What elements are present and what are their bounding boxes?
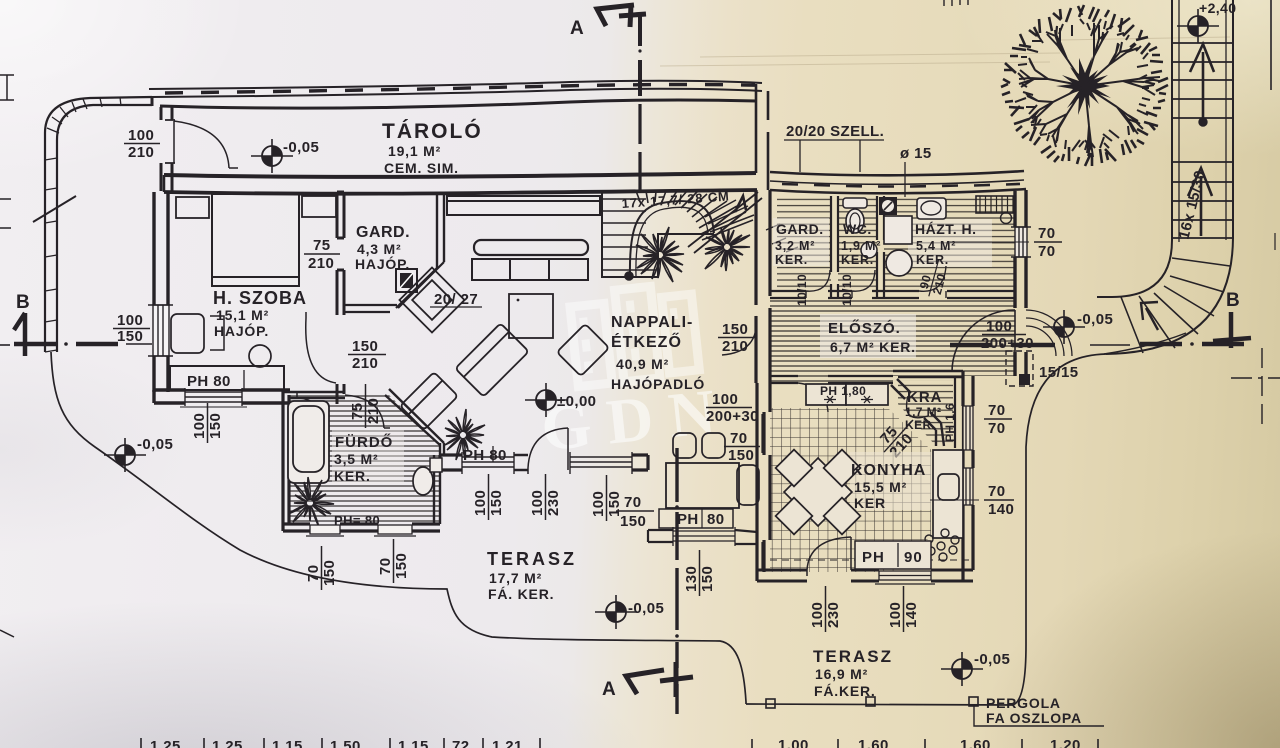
svg-text:1,15: 1,15 — [398, 738, 429, 748]
svg-text:1,25: 1,25 — [150, 738, 181, 748]
svg-text:B: B — [16, 292, 31, 313]
svg-text:+2,40: +2,40 — [1199, 0, 1236, 16]
svg-text:H. SZOBA: H. SZOBA — [213, 288, 307, 308]
svg-text:70: 70 — [730, 430, 748, 447]
svg-text:1,60: 1,60 — [858, 737, 889, 748]
svg-text:150: 150 — [722, 321, 748, 338]
svg-text:GARD.: GARD. — [776, 221, 824, 237]
svg-text:80: 80 — [707, 511, 725, 528]
svg-text:70: 70 — [305, 565, 322, 583]
svg-text:1,7 M²: 1,7 M² — [905, 405, 941, 419]
svg-text:150: 150 — [393, 553, 410, 579]
svg-text:200+30: 200+30 — [981, 335, 1034, 352]
svg-text:HÁZT. H.: HÁZT. H. — [915, 221, 977, 237]
svg-text:-0,05: -0,05 — [1077, 311, 1113, 328]
svg-text:100: 100 — [529, 490, 546, 516]
svg-text:70: 70 — [988, 420, 1006, 437]
svg-text:KER.: KER. — [841, 253, 874, 267]
svg-text:210: 210 — [365, 398, 382, 424]
svg-text:±0,00: ±0,00 — [557, 393, 596, 410]
svg-text:70: 70 — [624, 494, 642, 511]
svg-text:130: 130 — [683, 566, 700, 592]
svg-text:100: 100 — [128, 127, 154, 144]
svg-text:KONYHA: KONYHA — [851, 462, 926, 479]
svg-text:150: 150 — [699, 566, 716, 592]
svg-text:PH: PH — [677, 511, 699, 528]
svg-text:150: 150 — [606, 491, 623, 517]
svg-text:KER.: KER. — [334, 468, 371, 484]
svg-text:230: 230 — [825, 602, 842, 628]
svg-text:210: 210 — [722, 338, 748, 355]
svg-text:10/10: 10/10 — [840, 274, 854, 306]
svg-text:100: 100 — [590, 491, 607, 517]
svg-text:GARD.: GARD. — [356, 224, 410, 241]
svg-text:KER.: KER. — [775, 253, 808, 267]
svg-text:20/20 SZELL.: 20/20 SZELL. — [786, 123, 884, 140]
svg-text:150: 150 — [321, 560, 338, 586]
svg-text:72: 72 — [452, 738, 470, 748]
svg-text:-0,05: -0,05 — [628, 600, 664, 617]
svg-text:100: 100 — [472, 490, 489, 516]
svg-text:KER: KER — [854, 495, 886, 511]
svg-text:140: 140 — [903, 602, 920, 628]
svg-text:TÁROLÓ: TÁROLÓ — [382, 119, 483, 143]
svg-text:1,15: 1,15 — [272, 738, 303, 748]
svg-text:140: 140 — [988, 501, 1014, 518]
svg-text:CEM. SIM.: CEM. SIM. — [384, 160, 459, 176]
svg-text:TERASZ: TERASZ — [813, 647, 893, 666]
svg-text:40,9 M²: 40,9 M² — [616, 356, 669, 372]
svg-text:B: B — [1226, 290, 1241, 311]
svg-text:TERASZ: TERASZ — [487, 549, 577, 569]
svg-text:150: 150 — [620, 513, 646, 530]
svg-text:210: 210 — [352, 355, 378, 372]
svg-text:KRA: KRA — [907, 389, 943, 406]
svg-text:3,2 M²: 3,2 M² — [775, 239, 815, 253]
svg-text:1,60: 1,60 — [960, 737, 991, 748]
svg-text:16,9 M²: 16,9 M² — [815, 666, 868, 682]
svg-text:1,21: 1,21 — [492, 738, 523, 748]
svg-text:150: 150 — [352, 338, 378, 355]
svg-text:ÉTKEZŐ: ÉTKEZŐ — [611, 332, 682, 351]
svg-text:PERGOLA: PERGOLA — [986, 695, 1061, 711]
svg-text:230: 230 — [545, 490, 562, 516]
svg-text:1,25: 1,25 — [212, 738, 243, 748]
svg-text:-0,05: -0,05 — [974, 651, 1010, 668]
svg-text:150: 150 — [207, 413, 224, 439]
svg-text:6,7 M² KER.: 6,7 M² KER. — [830, 339, 916, 355]
svg-text:100: 100 — [191, 413, 208, 439]
svg-text:HAJÓPADLÓ: HAJÓPADLÓ — [611, 375, 705, 392]
svg-text:FÜRDŐ: FÜRDŐ — [335, 433, 393, 451]
svg-text:150: 150 — [117, 328, 143, 345]
svg-text:3,5 M²: 3,5 M² — [334, 451, 378, 467]
svg-text:10/10: 10/10 — [795, 274, 809, 306]
svg-text:70: 70 — [377, 558, 394, 576]
svg-text:WC.: WC. — [843, 221, 872, 237]
svg-text:NAPPALI-: NAPPALI- — [611, 314, 693, 331]
svg-text:70: 70 — [988, 483, 1006, 500]
svg-text:PH 80: PH 80 — [463, 447, 507, 464]
svg-text:1,20: 1,20 — [1050, 737, 1081, 748]
svg-text:1,00: 1,00 — [778, 737, 809, 748]
svg-text:100: 100 — [809, 602, 826, 628]
svg-text:210: 210 — [308, 255, 334, 272]
svg-text:100: 100 — [887, 602, 904, 628]
svg-text:150: 150 — [728, 447, 754, 464]
svg-text:A: A — [602, 679, 617, 700]
svg-text:70: 70 — [1038, 243, 1056, 260]
svg-text:A: A — [570, 18, 585, 39]
svg-text:19,1 M²: 19,1 M² — [388, 143, 441, 159]
svg-text:PH: PH — [862, 549, 885, 566]
svg-text:100: 100 — [986, 318, 1012, 335]
svg-text:70: 70 — [1038, 225, 1056, 242]
svg-text:90: 90 — [904, 549, 923, 566]
svg-text:FA OSZLOPA: FA OSZLOPA — [986, 710, 1082, 726]
svg-text:75: 75 — [313, 237, 331, 254]
svg-text:70: 70 — [988, 402, 1006, 419]
svg-text:HAJÓP.: HAJÓP. — [214, 322, 269, 339]
svg-text:-0,05: -0,05 — [283, 139, 319, 156]
svg-text:ELŐSZÓ.: ELŐSZÓ. — [828, 319, 901, 337]
svg-text:200+30: 200+30 — [706, 408, 759, 425]
svg-text:17,7 M²: 17,7 M² — [489, 570, 542, 586]
svg-text:150: 150 — [488, 490, 505, 516]
svg-text:PH 80: PH 80 — [187, 373, 231, 390]
svg-text:100: 100 — [712, 391, 738, 408]
svg-text:PH= 80: PH= 80 — [334, 513, 380, 528]
svg-text:4,3 M²: 4,3 M² — [357, 241, 401, 257]
svg-text:20/ 27: 20/ 27 — [434, 291, 478, 308]
svg-text:75: 75 — [349, 403, 366, 421]
svg-text:15,5 M²: 15,5 M² — [854, 479, 907, 495]
svg-text:PH 1,6: PH 1,6 — [943, 403, 957, 442]
svg-text:1,9 M²: 1,9 M² — [841, 239, 881, 253]
svg-text:FÁ.KER.: FÁ.KER. — [814, 683, 876, 699]
svg-text:100: 100 — [117, 312, 143, 329]
svg-text:16x 15/30: 16x 15/30 — [1176, 169, 1210, 241]
svg-text:210: 210 — [128, 144, 154, 161]
svg-text:5,4 M²: 5,4 M² — [916, 239, 956, 253]
svg-text:15,1 M²: 15,1 M² — [216, 307, 269, 323]
svg-text:1,50: 1,50 — [330, 738, 361, 748]
svg-text:ø 15: ø 15 — [900, 145, 932, 162]
svg-text:FÁ. KER.: FÁ. KER. — [488, 586, 554, 602]
svg-text:15/15: 15/15 — [1039, 364, 1079, 381]
svg-text:KER.: KER. — [916, 253, 949, 267]
svg-text:-0,05: -0,05 — [137, 436, 173, 453]
svg-text:PH 1,80: PH 1,80 — [820, 384, 866, 398]
